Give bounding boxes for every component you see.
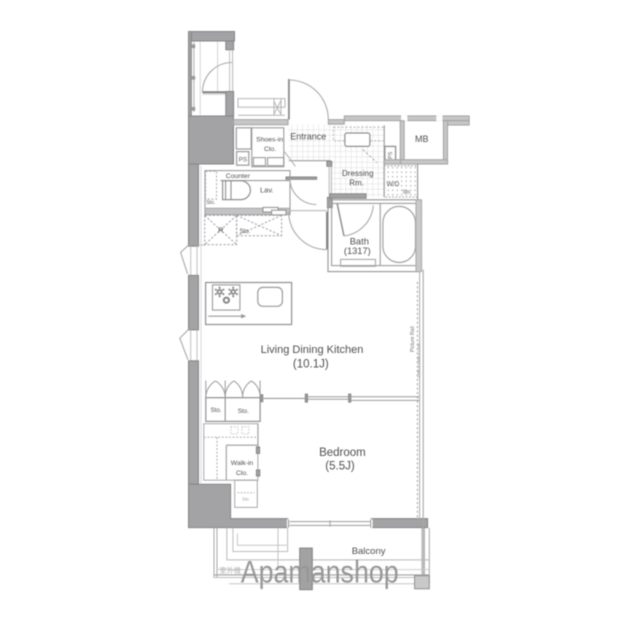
- svg-text:Sto.: Sto.: [240, 229, 251, 235]
- svg-text:Living Dining Kitchen: Living Dining Kitchen: [261, 344, 364, 356]
- svg-text:Lav.: Lav.: [260, 185, 274, 194]
- svg-text:Sto.: Sto.: [402, 189, 411, 195]
- svg-text:Apamanshop: Apamanshop: [241, 556, 399, 590]
- svg-text:Counter: Counter: [226, 173, 251, 180]
- svg-text:Walk-in: Walk-in: [231, 460, 254, 467]
- svg-text:Sto.: Sto.: [206, 200, 215, 206]
- svg-text:Shoes-in: Shoes-in: [256, 137, 283, 144]
- svg-text:Bath: Bath: [350, 236, 369, 246]
- svg-text:Bedroom: Bedroom: [319, 447, 366, 459]
- svg-text:室外機: 室外機: [219, 566, 241, 575]
- svg-text:Clo.: Clo.: [264, 146, 276, 153]
- svg-text:(1317): (1317): [344, 246, 371, 256]
- svg-text:Sto.: Sto.: [238, 408, 249, 415]
- svg-text:(5.5J): (5.5J): [325, 461, 355, 473]
- svg-text:Sto.: Sto.: [210, 407, 221, 414]
- svg-text:MB: MB: [415, 134, 429, 144]
- svg-text:Rm.: Rm.: [349, 179, 364, 188]
- svg-text:2,550 x 4,990 x 2,400: 2,550 x 4,990 x 2,400: [417, 343, 421, 378]
- svg-text:R: R: [218, 226, 224, 235]
- svg-text:Entrance: Entrance: [290, 131, 326, 141]
- svg-text:Sto.: Sto.: [242, 497, 249, 502]
- svg-text:Dressing: Dressing: [342, 169, 374, 178]
- svg-text:Picture Rail: Picture Rail: [410, 326, 416, 352]
- svg-text:Clo.: Clo.: [236, 470, 248, 477]
- svg-text:PS: PS: [388, 151, 394, 159]
- svg-text:PS: PS: [239, 156, 247, 163]
- svg-text:W/D: W/D: [387, 181, 400, 188]
- svg-text:(10.1J): (10.1J): [293, 359, 329, 371]
